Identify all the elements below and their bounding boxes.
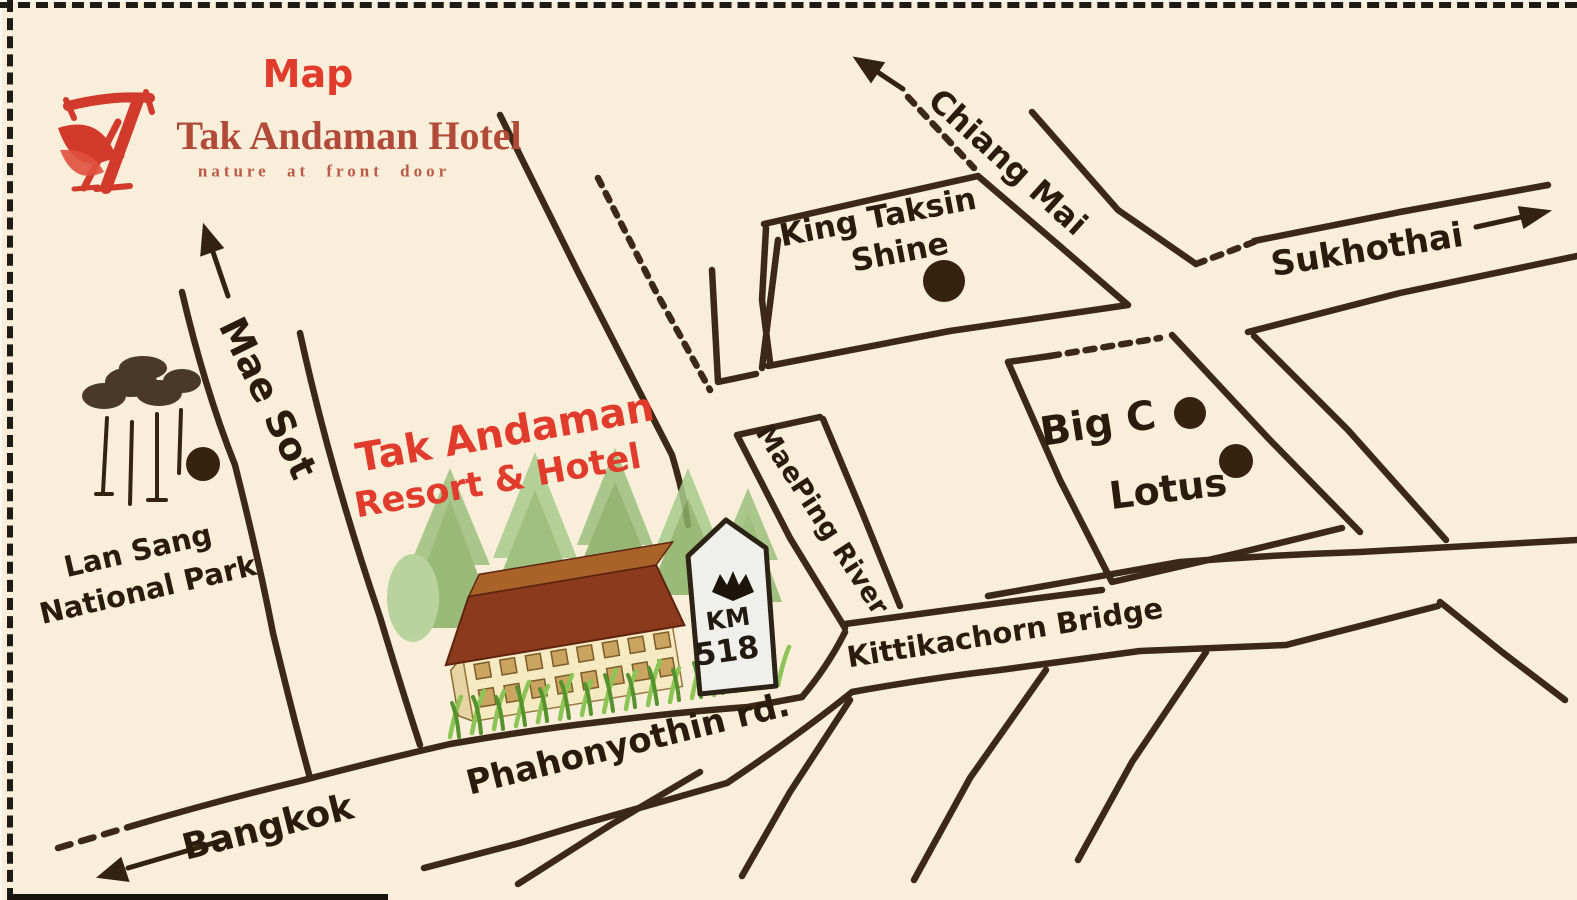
bottom-edge-bar bbox=[8, 894, 388, 900]
road-sukhothai-upper-dashed bbox=[1196, 242, 1254, 264]
sukhothai-arrowhead-icon bbox=[1521, 209, 1545, 225]
mae-sot-arrowhead-icon bbox=[203, 229, 220, 253]
left-perforation bbox=[7, 0, 13, 900]
road-branch-4 bbox=[1078, 652, 1206, 860]
bangkok-arrowhead-icon bbox=[102, 861, 126, 879]
tak-andaman-monogram-icon bbox=[58, 92, 152, 189]
milestone-label-518: 518 bbox=[693, 632, 761, 672]
road-phahonyothin-top-edge-dashed bbox=[58, 826, 132, 848]
sukhothai-arrow-icon bbox=[1476, 216, 1526, 227]
big-c-dot bbox=[1174, 397, 1206, 429]
road-branch-3 bbox=[914, 670, 1046, 880]
chiang-mai-arrowhead-icon bbox=[858, 60, 881, 79]
hotel-map-page: { "header": { "map_label": "Map", "brand… bbox=[0, 0, 1577, 900]
road-branch-1 bbox=[518, 772, 700, 884]
map-title: Map bbox=[263, 55, 354, 93]
block-big-c-top-dashed bbox=[1050, 338, 1160, 356]
mae-sot-arrow-icon bbox=[213, 252, 228, 296]
bridge-connector bbox=[802, 632, 845, 697]
top-perforation bbox=[0, 2, 1577, 8]
chiang-mai-arrow-icon bbox=[876, 71, 903, 89]
brand-name: Tak Andaman Hotel bbox=[176, 116, 521, 156]
lan-sang-dot bbox=[186, 447, 220, 481]
road-mae-sot-right-edge bbox=[300, 333, 420, 745]
bridge-rail-upper bbox=[988, 540, 1577, 596]
lan-sang-trees-icon bbox=[82, 356, 201, 504]
road-middle-right-dashed bbox=[598, 178, 710, 390]
king-taksin-dot bbox=[923, 260, 965, 302]
road-right-fork bbox=[1440, 602, 1565, 700]
road-downright-right-edge bbox=[1254, 336, 1446, 540]
brand-tagline: nature at front door bbox=[198, 163, 450, 180]
left-edge-strip bbox=[0, 0, 2, 900]
